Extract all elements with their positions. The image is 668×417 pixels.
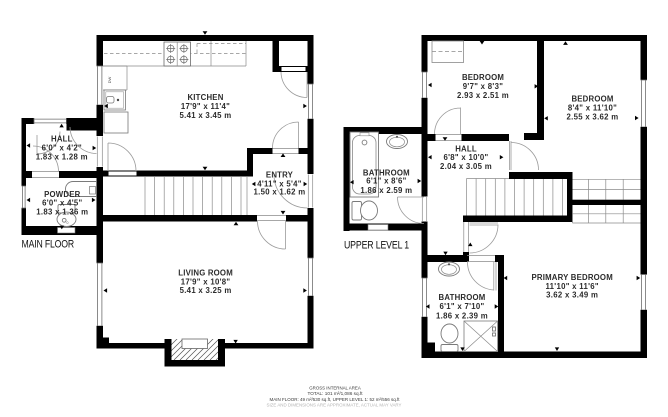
svg-text:0: 0 (67, 221, 69, 225)
svg-text:GROSS INTERNAL AREA: GROSS INTERNAL AREA (309, 386, 361, 391)
svg-text:BEDROOM: BEDROOM (571, 95, 613, 104)
svg-text:1.50 x 1.62 m: 1.50 x 1.62 m (253, 188, 305, 197)
svg-text:MAIN FLOOR: 49 m²/530 sq.ft, U: MAIN FLOOR: 49 m²/530 sq.ft, UPPER LEVEL… (270, 397, 401, 402)
svg-text:6'1" x 7'10": 6'1" x 7'10" (439, 302, 484, 311)
svg-text:MAIN FLOOR: MAIN FLOOR (22, 239, 75, 251)
svg-text:ENTRY: ENTRY (266, 171, 294, 180)
svg-text:6'8" x 10'0": 6'8" x 10'0" (443, 153, 488, 162)
svg-text:1.83 x 1.28 m: 1.83 x 1.28 m (36, 152, 88, 161)
svg-text:8'4" x 11'10": 8'4" x 11'10" (568, 103, 617, 112)
svg-text:11'10" x 11'6": 11'10" x 11'6" (545, 282, 598, 291)
svg-text:1.83 x 1.36 m: 1.83 x 1.36 m (36, 208, 88, 217)
svg-text:2.04 x 3.05 m: 2.04 x 3.05 m (440, 162, 492, 171)
svg-text:5.41 x 3.25 m: 5.41 x 3.25 m (180, 286, 232, 295)
svg-text:DW: DW (107, 76, 112, 83)
svg-text:6'0" x 4'2": 6'0" x 4'2" (42, 144, 82, 153)
svg-text:17'9" x 11'4": 17'9" x 11'4" (181, 102, 230, 111)
svg-text:6'1" x 8'6": 6'1" x 8'6" (366, 177, 406, 186)
svg-text:UPPER LEVEL 1: UPPER LEVEL 1 (344, 240, 409, 252)
svg-text:1.86 x 2.59 m: 1.86 x 2.59 m (360, 186, 412, 195)
svg-text:HALL: HALL (51, 135, 73, 144)
svg-text:BEDROOM: BEDROOM (462, 73, 504, 82)
svg-text:2.93 x 2.51 m: 2.93 x 2.51 m (457, 91, 509, 100)
svg-text:2.55 x 3.62 m: 2.55 x 3.62 m (566, 113, 618, 122)
svg-text:5.41 x 3.45 m: 5.41 x 3.45 m (179, 111, 231, 120)
svg-text:6'0" x 4'5": 6'0" x 4'5" (42, 199, 82, 208)
svg-text:BATHROOM: BATHROOM (439, 293, 486, 302)
svg-text:LIVING ROOM: LIVING ROOM (178, 269, 233, 278)
svg-text:9'7" x 8'3": 9'7" x 8'3" (463, 82, 503, 91)
svg-text:KITCHEN: KITCHEN (187, 93, 223, 102)
svg-text:PRIMARY BEDROOM: PRIMARY BEDROOM (531, 273, 612, 282)
svg-text:SIZE AND DIMENSIONS ARE APPROX: SIZE AND DIMENSIONS ARE APPROXIMATE, ACT… (267, 403, 402, 408)
svg-text:17'9" x 10'8": 17'9" x 10'8" (181, 277, 231, 286)
svg-text:3.62 x 3.49 m: 3.62 x 3.49 m (546, 291, 598, 300)
svg-text:1.86 x 2.39 m: 1.86 x 2.39 m (436, 311, 488, 320)
svg-text:TOTAL: 101 m²/1,086 sq.ft: TOTAL: 101 m²/1,086 sq.ft (308, 391, 364, 396)
